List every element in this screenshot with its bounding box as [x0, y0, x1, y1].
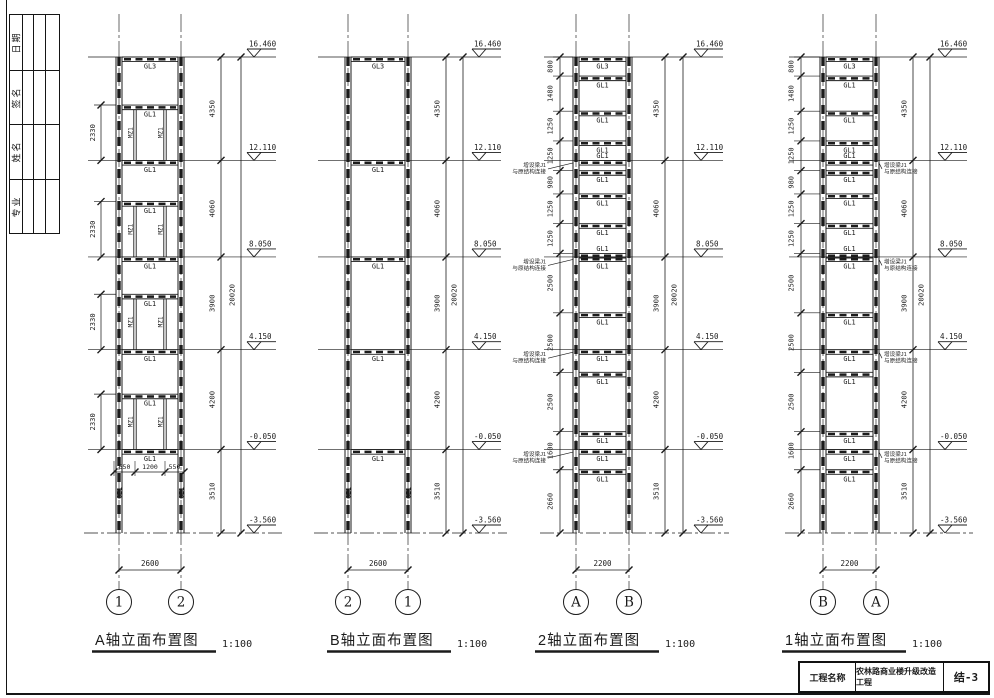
dim-label: 2500: [547, 394, 555, 411]
elevation-value: 16.460: [696, 40, 724, 49]
elevation-marker-triangle: [472, 442, 479, 450]
elevation-marker-triangle: [694, 342, 701, 350]
signature-cell: [34, 71, 46, 125]
dim-label: 3900: [652, 295, 661, 313]
elevation-marker-triangle: [938, 342, 945, 350]
view-scale: 1:100: [912, 639, 942, 650]
dim-label: 3510: [900, 482, 909, 500]
elevation-value: 4.150: [474, 332, 497, 341]
elevation-value: 8.050: [249, 239, 272, 248]
elevation-marker-triangle: [701, 249, 708, 257]
axis-bubble-label: 2: [177, 595, 186, 611]
beam-label: GL1: [843, 82, 855, 90]
beam-label: GL1: [372, 262, 384, 270]
elevation-marker-triangle: [472, 342, 479, 350]
beam-label: GL1: [843, 455, 855, 463]
dim-label: 2500: [547, 275, 555, 292]
dim-label: 20020: [670, 284, 679, 306]
elevation-value: 4.150: [940, 332, 963, 341]
beam-label: GL3: [843, 63, 855, 71]
beam-label: GL1: [144, 111, 156, 119]
column-label: GZ1: [115, 487, 123, 499]
dim-label: 20020: [450, 284, 459, 306]
dim-label: 980: [788, 176, 796, 189]
beam-label: GL1: [843, 262, 855, 270]
axis-bubble-label: A: [570, 595, 581, 611]
beam-label: GL1: [843, 199, 855, 207]
dim-label: 4200: [433, 391, 442, 409]
dim-label: 2500: [788, 275, 796, 292]
beam-label: GL1: [843, 318, 855, 326]
dim-label: 4350: [900, 100, 909, 118]
beam-label: GL1: [596, 82, 608, 90]
annotation-text: 增设梁J1: [523, 350, 546, 358]
beam-label: GL1: [144, 300, 156, 308]
dim-label: 20020: [228, 284, 237, 306]
elevation-marker-triangle: [247, 152, 254, 160]
beam-label: GL1: [843, 378, 855, 386]
beam-label: GL1: [843, 475, 855, 483]
signature-row: 专业: [10, 179, 59, 234]
dim-label: 4200: [652, 391, 661, 409]
annotation-text: 与原结构连接: [512, 357, 546, 365]
column-label: GZ1: [404, 487, 412, 499]
elevation-value: 12.110: [249, 143, 277, 152]
dim-label: 1250: [547, 147, 555, 164]
elevation-marker-triangle: [945, 249, 952, 257]
signature-cell: [34, 15, 46, 70]
elevation-value: 12.110: [696, 143, 724, 152]
post-label: MZ1: [128, 127, 135, 138]
elevation-marker-triangle: [701, 442, 708, 450]
elevation-marker-triangle: [479, 249, 486, 257]
signature-cell: [46, 71, 59, 125]
dim-label: 2600: [141, 559, 160, 568]
elevation-marker-triangle: [945, 49, 952, 57]
elevation-marker-triangle: [701, 342, 708, 350]
elevation-value: -3.560: [696, 515, 724, 524]
column-label: GZ1: [177, 487, 185, 499]
dim-label: 800: [547, 60, 555, 73]
dim-label: 800: [788, 60, 796, 73]
drawing-sheet: 16.46012.1108.0504.150-0.050-3.560GZ1GZ1…: [0, 0, 994, 698]
dim-label: 4200: [900, 391, 909, 409]
view-scale: 1:100: [665, 639, 695, 650]
elevation-view-1: 16.46012.1108.0504.150-0.050-3.560GL3GL1…: [782, 14, 973, 652]
elevation-marker-triangle: [694, 442, 701, 450]
beam-label: GL1: [596, 437, 608, 445]
view-scale: 1:100: [222, 639, 252, 650]
axis-bubble-label: B: [624, 595, 634, 611]
elevation-value: -0.050: [249, 432, 277, 441]
signature-label-sign: 签名: [10, 86, 23, 108]
dim-label: 2330: [88, 313, 97, 330]
dim-label: 4350: [208, 100, 217, 118]
elevation-marker-triangle: [479, 342, 486, 350]
project-name-label: 工程名称: [800, 663, 856, 691]
elevation-marker-triangle: [254, 152, 261, 160]
signature-label-date: 日期: [10, 31, 23, 53]
dim-label: 3510: [652, 482, 661, 500]
elevation-value: -3.560: [249, 515, 277, 524]
elevation-marker-triangle: [694, 49, 701, 57]
elevation-value: 12.110: [940, 143, 968, 152]
dim-label: 1250: [788, 200, 796, 217]
elevation-marker-triangle: [472, 525, 479, 533]
dim-label: 3510: [208, 482, 217, 500]
elevation-marker-triangle: [938, 249, 945, 257]
elevation-marker-triangle: [247, 525, 254, 533]
annotation-text: 增设梁J1: [523, 450, 546, 458]
elevation-marker-triangle: [945, 342, 952, 350]
signature-row-label: 姓名: [10, 125, 23, 179]
beam-label: GL1: [843, 117, 855, 125]
beam-label: GL1: [843, 245, 855, 253]
elevation-marker-triangle: [472, 152, 479, 160]
elevation-marker-triangle: [479, 49, 486, 57]
dim-label: 1250: [547, 118, 555, 135]
beam-label: GL1: [144, 355, 156, 363]
beam-label: GL3: [596, 63, 608, 71]
annotation-leader: [548, 352, 573, 358]
beam-label: GL1: [144, 455, 156, 463]
elevation-drawing-canvas: 16.46012.1108.0504.150-0.050-3.560GZ1GZ1…: [0, 0, 994, 698]
elevation-marker-triangle: [247, 249, 254, 257]
signature-cell: [46, 125, 59, 179]
elevation-marker-triangle: [472, 49, 479, 57]
signature-cell: [34, 125, 46, 179]
dim-label: 1250: [788, 230, 796, 247]
beam-label: GL1: [596, 117, 608, 125]
beam-label: GL1: [596, 378, 608, 386]
dim-label: 1480: [788, 85, 796, 102]
dim-label: 550: [169, 463, 181, 471]
elevation-marker-triangle: [694, 152, 701, 160]
elevation-value: 8.050: [940, 239, 963, 248]
axis-bubble-label: 1: [404, 595, 413, 611]
dim-label: 2330: [88, 413, 97, 430]
post-label: MZ1: [158, 316, 165, 327]
beam-label: GL1: [596, 455, 608, 463]
signature-cell: [23, 15, 34, 70]
dim-label: 2330: [88, 124, 97, 141]
elevation-marker-triangle: [938, 525, 945, 533]
elevation-view-B: 16.46012.1108.0504.150-0.050-3.560GZ1GZ1…: [314, 14, 507, 652]
view-title: 2轴立面布置图: [538, 632, 640, 649]
elevation-marker-triangle: [254, 342, 261, 350]
signature-row-label: 专业: [10, 180, 23, 234]
dim-label: 650: [119, 463, 131, 471]
beam-label: GL1: [596, 176, 608, 184]
elevation-marker-triangle: [472, 249, 479, 257]
sheet-border-left: [6, 0, 7, 695]
elevation-marker-triangle: [247, 442, 254, 450]
signature-row: 日期: [10, 15, 59, 70]
beam-label: GL1: [596, 475, 608, 483]
dim-label: 2200: [840, 559, 859, 568]
elevation-value: 4.150: [696, 332, 719, 341]
annotation-text: 增设梁J1: [884, 450, 907, 458]
elevation-value: -0.050: [940, 432, 968, 441]
axis-bubble-label: 2: [344, 595, 353, 611]
dim-label: 20020: [917, 284, 926, 306]
beam-label: GL3: [372, 63, 384, 71]
elevation-value: 8.050: [696, 239, 719, 248]
dim-label: 1250: [788, 118, 796, 135]
elevation-value: 8.050: [474, 239, 497, 248]
signature-label-name: 姓名: [10, 141, 23, 163]
elevation-marker-triangle: [479, 525, 486, 533]
drawing-number: 结-3: [944, 663, 988, 691]
column-label: GZ1: [344, 487, 352, 499]
dim-label: 1200: [142, 463, 158, 471]
signature-row: 姓名: [10, 124, 59, 179]
elevation-marker-triangle: [694, 249, 701, 257]
elevation-value: -0.050: [696, 432, 724, 441]
view-title: B轴立面布置图: [330, 632, 434, 649]
dim-label: 3510: [433, 482, 442, 500]
post-label: MZ1: [158, 223, 165, 234]
dim-label: 1250: [547, 230, 555, 247]
elevation-marker-triangle: [938, 442, 945, 450]
signature-cell: [23, 71, 34, 125]
elevation-marker-triangle: [254, 249, 261, 257]
beam-label: GL1: [372, 355, 384, 363]
elevation-marker-triangle: [701, 49, 708, 57]
elevation-marker-triangle: [945, 442, 952, 450]
elevation-marker-triangle: [938, 152, 945, 160]
beam-label: GL1: [144, 400, 156, 408]
beam-label: GL3: [144, 63, 156, 71]
signature-label-discipline: 专业: [10, 195, 23, 217]
dim-label: 4060: [652, 200, 661, 218]
beam-label: GL1: [843, 152, 855, 160]
beam-label: GL1: [843, 437, 855, 445]
view-scale: 1:100: [457, 639, 487, 650]
axis-bubble-label: B: [818, 595, 828, 611]
elevation-marker-triangle: [479, 152, 486, 160]
signature-strip: 日期 签名 姓名 专业: [9, 14, 60, 234]
elevation-view-2: 16.46012.1108.0504.150-0.050-3.560GL3GL1…: [512, 14, 729, 652]
annotation-text: 与原结构连接: [512, 457, 546, 465]
dim-label: 1600: [788, 442, 796, 459]
elevation-marker-triangle: [254, 49, 261, 57]
axis-bubble-label: A: [870, 595, 881, 611]
view-title: 1轴立面布置图: [785, 632, 887, 649]
elevation-value: 12.110: [474, 143, 502, 152]
post-label: MZ1: [128, 223, 135, 234]
post-label: MZ1: [158, 127, 165, 138]
beam-label: GL1: [596, 199, 608, 207]
signature-row: 签名: [10, 70, 59, 125]
elevation-view-A: 16.46012.1108.0504.150-0.050-3.560GZ1GZ1…: [84, 14, 282, 652]
dim-label: 4060: [208, 200, 217, 218]
dim-label: 4350: [652, 100, 661, 118]
dim-label: 1250: [788, 147, 796, 164]
elevation-value: -0.050: [474, 432, 502, 441]
dim-label: 980: [547, 176, 555, 189]
elevation-value: 16.460: [940, 40, 968, 49]
annotation-text: 与原结构连接: [512, 264, 546, 272]
dim-label: 2660: [788, 493, 796, 510]
dim-label: 2600: [369, 559, 388, 568]
elevation-marker-triangle: [254, 525, 261, 533]
beam-label: GL1: [372, 166, 384, 174]
annotation-text: 与原结构连接: [512, 167, 546, 175]
beam-label: GL1: [843, 176, 855, 184]
dim-label: 1250: [547, 200, 555, 217]
annotation-text: 增设梁J1: [523, 161, 546, 169]
dim-label: 2500: [788, 334, 796, 351]
dim-label: 3900: [433, 295, 442, 313]
annotation-text: 增设梁J1: [884, 257, 907, 265]
beam-label: GL1: [596, 229, 608, 237]
beam-label: GL1: [596, 152, 608, 160]
dim-label: 1480: [547, 85, 555, 102]
elevation-marker-triangle: [945, 525, 952, 533]
dim-label: 4060: [433, 200, 442, 218]
dim-label: 3900: [900, 295, 909, 313]
elevation-value: -3.560: [940, 515, 968, 524]
elevation-marker-triangle: [701, 152, 708, 160]
elevation-marker-triangle: [247, 342, 254, 350]
project-name: 农林路商业楼升级改造工程: [856, 663, 944, 691]
beam-label: GL1: [596, 245, 608, 253]
beam-label: GL1: [843, 355, 855, 363]
title-block: 工程名称 农林路商业楼升级改造工程 结-3: [798, 661, 990, 693]
post-label: MZ1: [128, 416, 135, 427]
signature-row-label: 签名: [10, 71, 23, 125]
elevation-marker-triangle: [938, 49, 945, 57]
elevation-value: -3.560: [474, 515, 502, 524]
dim-label: 2500: [788, 394, 796, 411]
dim-label: 2500: [547, 334, 555, 351]
elevation-marker-triangle: [247, 49, 254, 57]
elevation-marker-triangle: [254, 442, 261, 450]
annotation-text: 增设梁J1: [523, 257, 546, 265]
beam-label: GL1: [596, 262, 608, 270]
post-label: MZ1: [158, 416, 165, 427]
beam-label: GL1: [144, 166, 156, 174]
dim-label: 2660: [547, 493, 555, 510]
annotation-leader: [548, 259, 573, 265]
beam-label: GL1: [372, 455, 384, 463]
view-title: A轴立面布置图: [95, 632, 199, 649]
beam-label: GL1: [596, 318, 608, 326]
elevation-value: 4.150: [249, 332, 272, 341]
dim-label: 4350: [433, 100, 442, 118]
dim-label: 4200: [208, 391, 217, 409]
beam-label: GL1: [596, 355, 608, 363]
signature-row-label: 日期: [10, 15, 23, 70]
beam-label: GL1: [144, 207, 156, 215]
axis-bubble-label: 1: [115, 595, 124, 611]
dim-label: 4060: [900, 200, 909, 218]
beam-label: GL1: [843, 229, 855, 237]
elevation-marker-triangle: [945, 152, 952, 160]
dim-label: 3900: [208, 295, 217, 313]
elevation-marker-triangle: [694, 525, 701, 533]
dim-label: 2200: [593, 559, 612, 568]
sheet-border-bottom: [6, 693, 990, 695]
signature-cell: [23, 180, 34, 234]
beam-label: GL1: [144, 262, 156, 270]
annotation-text: 增设梁J1: [884, 350, 907, 358]
elevation-value: 16.460: [474, 40, 502, 49]
elevation-value: 16.460: [249, 40, 277, 49]
elevation-marker-triangle: [479, 442, 486, 450]
dim-label: 2330: [88, 221, 97, 238]
signature-cell: [23, 125, 34, 179]
signature-cell: [46, 180, 59, 234]
signature-cell: [46, 15, 59, 70]
elevation-marker-triangle: [701, 525, 708, 533]
post-label: MZ1: [128, 316, 135, 327]
signature-cell: [34, 180, 46, 234]
annotation-text: 增设梁J1: [884, 161, 907, 169]
